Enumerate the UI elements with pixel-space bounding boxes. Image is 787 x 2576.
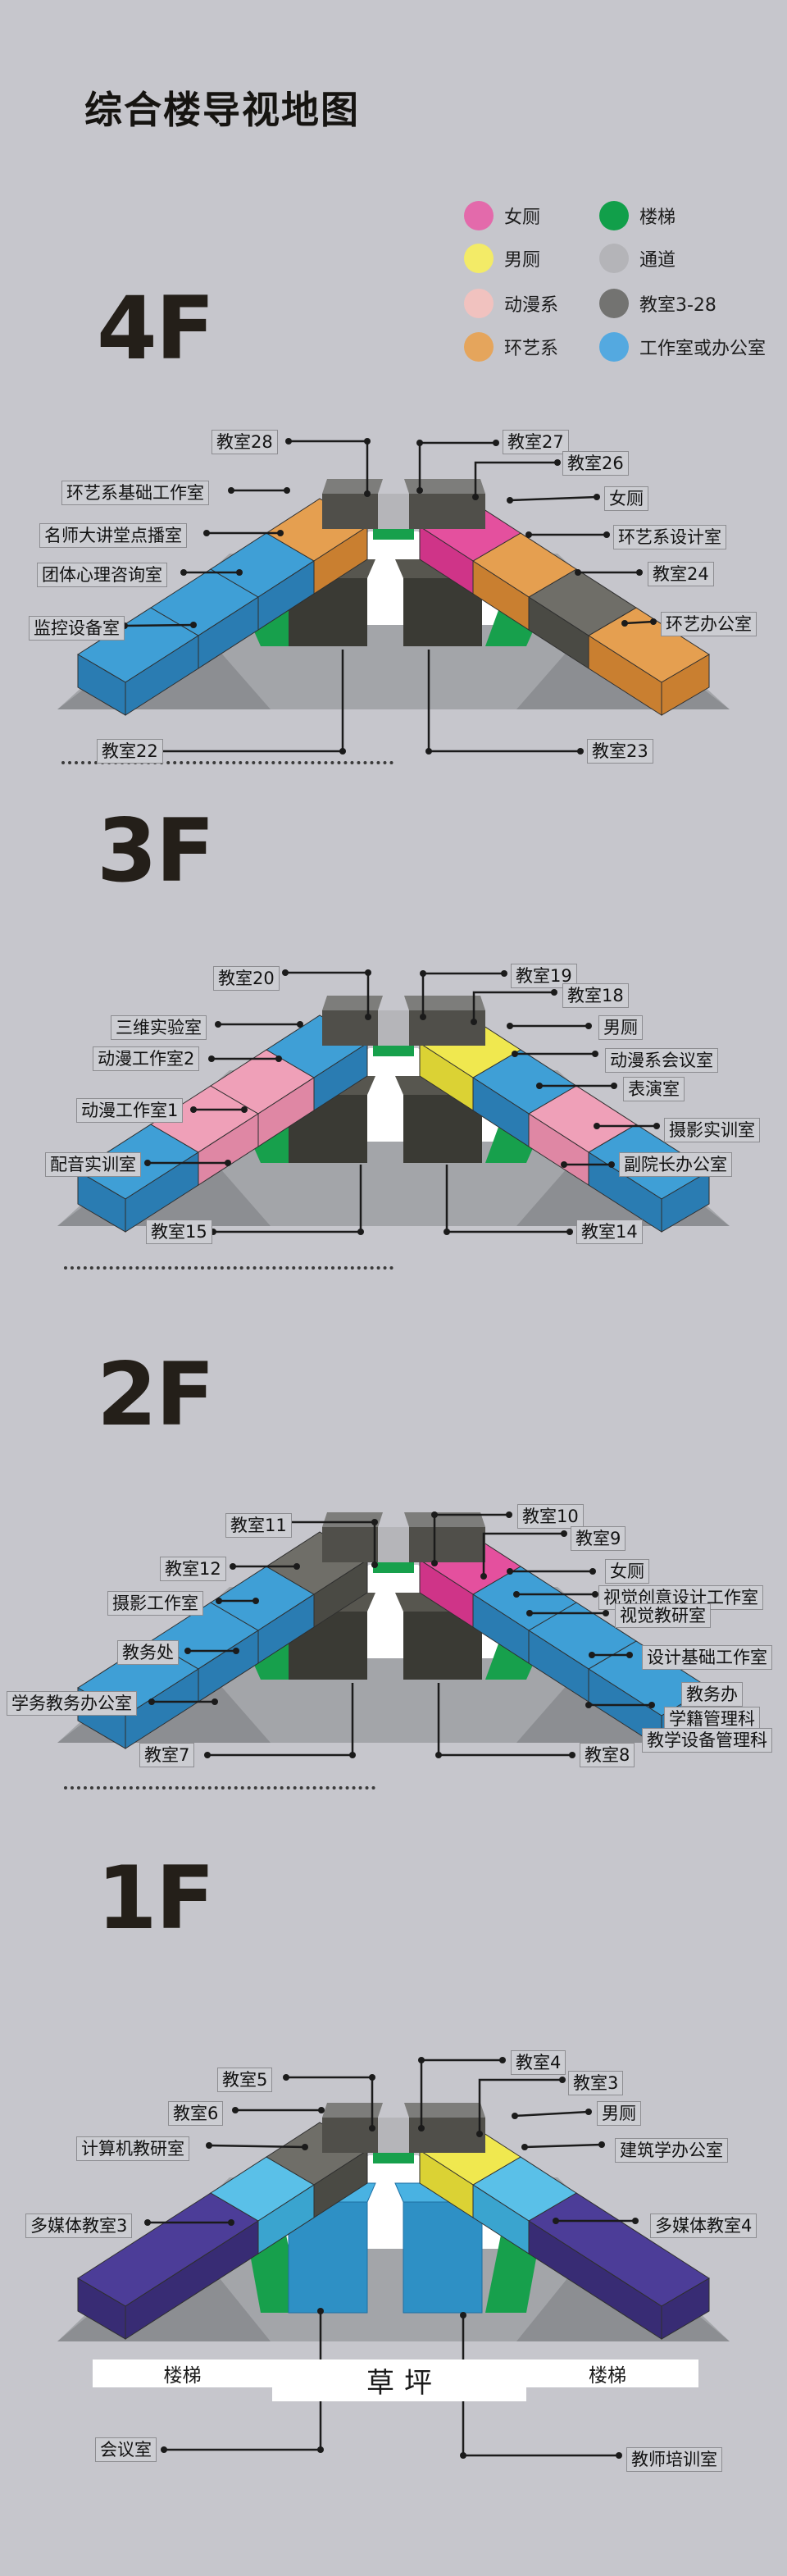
classroom-15-label: 教室15: [146, 1220, 212, 1244]
multimedia-room-4-label: 多媒体教室4: [650, 2214, 757, 2238]
three-d-lab-label: 三维实验室: [111, 1015, 207, 1040]
legend-item-env-art-dept: 环艺系: [464, 332, 558, 362]
classroom-4-label: 教室4: [511, 2050, 566, 2075]
classroom-8-label: 教室8: [580, 1743, 635, 1767]
classrooms-color-icon: [599, 289, 629, 318]
male-toilet-3f-label: 男厕: [598, 1015, 643, 1040]
classroom-22-label: 教室22: [97, 739, 163, 764]
classroom-28-label: 教室28: [212, 430, 278, 454]
classroom-18-label: 教室18: [562, 983, 629, 1008]
classroom-9-label: 教室9: [571, 1526, 626, 1551]
academic-affairs-dept-label: 教务处: [117, 1640, 179, 1665]
classroom-14-label: 教室14: [576, 1220, 643, 1244]
classroom-11-label: 教室11: [225, 1513, 292, 1538]
animation-studio-1-label: 动漫工作室1: [76, 1098, 183, 1123]
performance-room-label: 表演室: [623, 1077, 685, 1101]
floor-2f-title: 2F: [97, 1352, 213, 1438]
student-academic-office-label: 学务教务办公室: [7, 1691, 137, 1716]
monitoring-room-label: 监控设备室: [29, 616, 125, 641]
top-classroom-blocks: [322, 2103, 485, 2153]
legend-item-animation-dept: 动漫系: [464, 289, 558, 318]
floor-4f-title: 4F: [97, 285, 213, 372]
env-art-design-room-label: 环艺系设计室: [613, 525, 726, 549]
dubbing-training-room-label: 配音实训室: [45, 1152, 141, 1177]
animation-meeting-room-label: 动漫系会议室: [605, 1048, 718, 1073]
top-classroom-blocks: [322, 479, 485, 529]
floor-3f-title: 3F: [97, 808, 213, 895]
legend-item-classrooms: 教室3-28: [599, 289, 716, 318]
corridor-color-icon: [599, 244, 629, 273]
classroom-5-label: 教室5: [217, 2068, 272, 2092]
vice-dean-office-label: 副院长办公室: [619, 1152, 732, 1177]
teaching-equipment-section-label: 教学设备管理科: [642, 1728, 772, 1753]
female-toilet-4f-label: 女厕: [604, 486, 648, 511]
legend-item-male-toilet: 男厕: [464, 244, 540, 273]
legend-item-corridor: 通道: [599, 244, 676, 273]
stairs-color-icon: [599, 201, 629, 230]
poster-canvas: 综合楼导视地图 女厕 男厕 动漫系 环艺系 楼梯 通道 教室3-28 工作室或办…: [0, 0, 787, 2576]
animation-dept-color-icon: [464, 289, 494, 318]
group-counseling-room-label: 团体心理咨询室: [37, 563, 167, 587]
animation-studio-2-label: 动漫工作室2: [93, 1046, 199, 1071]
top-classroom-blocks: [322, 1512, 485, 1562]
legend-item-studio-office: 工作室或办公室: [599, 332, 766, 362]
page-title: 综合楼导视地图: [84, 80, 360, 134]
legend-item-stairs: 楼梯: [599, 201, 676, 230]
classroom-6-label: 教室6: [168, 2101, 223, 2126]
env-art-office-label: 环艺办公室: [661, 612, 757, 636]
lawn-strip: 草坪: [272, 2359, 526, 2401]
classroom-24-label: 教室24: [648, 562, 714, 586]
classroom-23-label: 教室23: [587, 739, 653, 764]
classroom-27-label: 教室27: [503, 430, 569, 454]
visual-research-office-label: 视觉教研室: [615, 1603, 711, 1628]
top-classroom-blocks: [322, 996, 485, 1046]
architecture-office-label: 建筑学办公室: [615, 2138, 728, 2163]
multimedia-room-3-label: 多媒体教室3: [25, 2214, 132, 2238]
academic-affairs-office-label: 教务办: [681, 1682, 743, 1707]
env-art-dept-color-icon: [464, 332, 494, 362]
classroom-26-label: 教室26: [562, 451, 629, 476]
floor-1f-title: 1F: [97, 1855, 213, 1942]
female-toilet-color-icon: [464, 201, 494, 230]
design-basic-studio-label: 设计基础工作室: [642, 1645, 772, 1670]
stairs-left-strip: 楼梯: [93, 2359, 272, 2387]
classroom-12-label: 教室12: [160, 1557, 226, 1581]
legend-item-female-toilet: 女厕: [464, 201, 540, 230]
photo-training-room-label: 摄影实训室: [664, 1118, 760, 1142]
env-art-basic-studio-label: 环艺系基础工作室: [61, 481, 209, 505]
floor-4f-map: [0, 402, 787, 779]
studio-office-color-icon: [599, 332, 629, 362]
classroom-10-label: 教室10: [517, 1504, 584, 1529]
lecture-broadcast-room-label: 名师大讲堂点播室: [39, 523, 187, 548]
classroom-3-label: 教室3: [568, 2071, 623, 2095]
teacher-training-room-label: 教师培训室: [626, 2447, 722, 2472]
male-toilet-1f-label: 男厕: [597, 2101, 641, 2126]
classroom-20-label: 教室20: [213, 966, 280, 991]
female-toilet-2f-label: 女厕: [605, 1559, 649, 1584]
computer-research-office-label: 计算机教研室: [76, 2136, 189, 2161]
meeting-room-label: 会议室: [95, 2437, 157, 2462]
classroom-7-label: 教室7: [139, 1743, 194, 1767]
stairs-right-strip: 楼梯: [516, 2359, 698, 2387]
photography-studio-label: 摄影工作室: [107, 1591, 203, 1616]
male-toilet-color-icon: [464, 244, 494, 273]
